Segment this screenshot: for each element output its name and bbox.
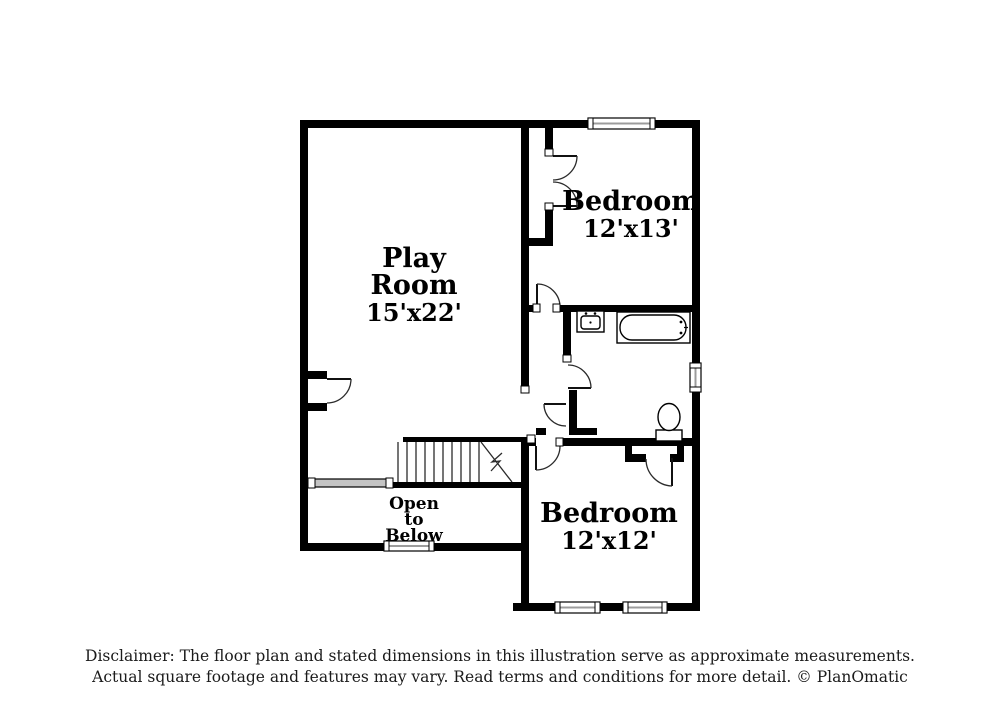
bedroom-bottom-label: Bedroom 12'x12' [540, 500, 678, 554]
door-bedroom-bottom-closet [646, 458, 672, 486]
play-room-dims: 15'x22' [366, 299, 462, 326]
disclaimer-line2: Actual square footage and features may v… [0, 667, 1000, 688]
open-to-below-label: Open to Below [385, 496, 443, 544]
play-room-label: Play Room 15'x22' [366, 245, 462, 326]
play-room-name-line1: Play [366, 245, 462, 272]
toilet-fixture [656, 404, 682, 442]
door-landing [544, 404, 566, 426]
bedroom-bottom-name: Bedroom [540, 500, 678, 527]
stairs [393, 437, 529, 488]
sink-fixture [577, 311, 604, 332]
floor-plan-drawing [0, 0, 1000, 727]
bedroom-top-dims: 12'x13' [562, 215, 700, 242]
play-room-name-line2: Room [366, 272, 462, 299]
open-below-line3: Below [385, 528, 443, 544]
door-play-room [327, 379, 351, 403]
bedroom-top-name: Bedroom [562, 188, 700, 215]
window-bedroom-bottom-left [555, 602, 600, 613]
disclaimer-line1: Disclaimer: The floor plan and stated di… [0, 646, 1000, 667]
bathroom-fixtures [577, 311, 690, 441]
disclaimer-text: Disclaimer: The floor plan and stated di… [0, 646, 1000, 688]
bedroom-top-label: Bedroom 12'x13' [562, 188, 700, 242]
door-bedroom-bottom [536, 446, 560, 470]
window-bedroom-bottom-right [623, 602, 667, 613]
window-bathroom [690, 363, 701, 392]
stair-railing [308, 478, 393, 488]
bedroom-bottom-dims: 12'x12' [540, 527, 678, 554]
window-bedroom-top [588, 118, 655, 129]
floor-plan-page: Play Room 15'x22' Bedroom 12'x13' Bedroo… [0, 0, 1000, 727]
bathtub-fixture [617, 312, 690, 343]
door-bathroom [568, 365, 591, 388]
stair-direction-break-arrow [491, 453, 502, 471]
